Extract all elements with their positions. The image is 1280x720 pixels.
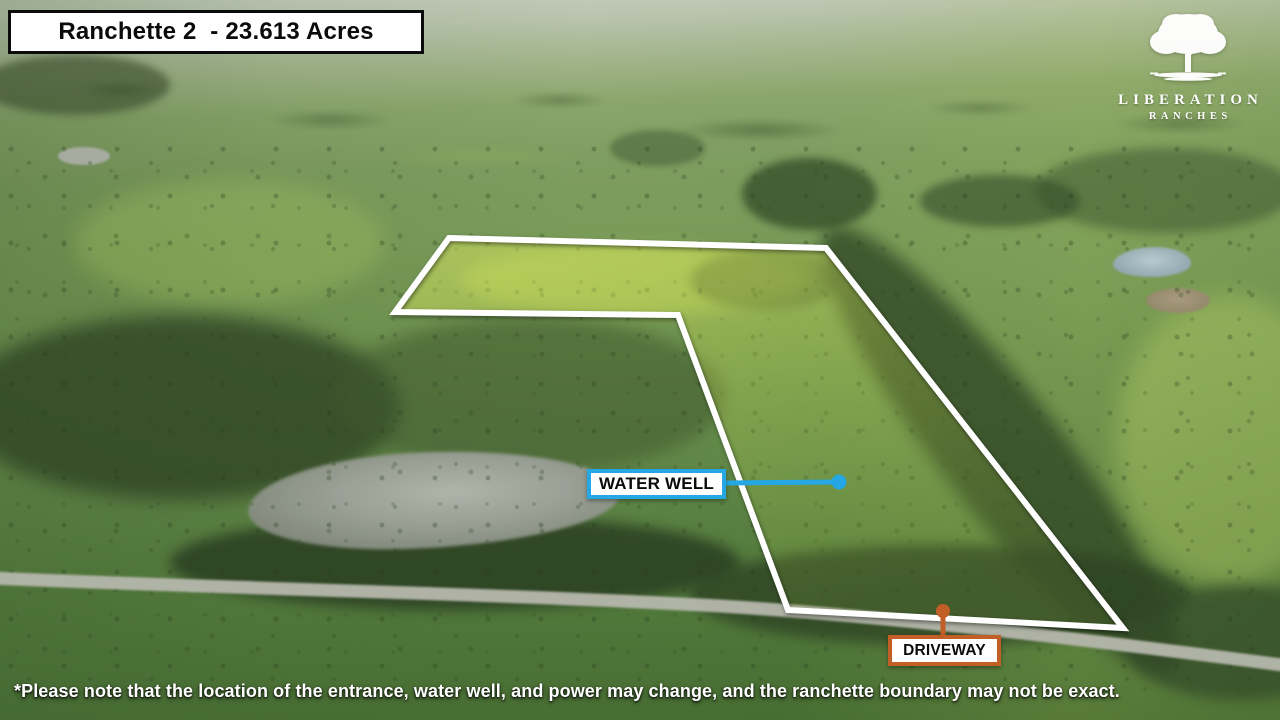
property-boundary-fill <box>395 238 1123 628</box>
liberation-ranches-logo: LIBERATION RANCHES <box>1103 6 1273 122</box>
logo-subname: RANCHES <box>1103 111 1273 122</box>
driveway-marker-dot <box>936 604 950 618</box>
property-title-badge: Ranchette 2 - 23.613 Acres <box>8 10 424 54</box>
aerial-photo: Ranchette 2 - 23.613 Acres LIBERATION RA… <box>0 0 1280 720</box>
property-title: Ranchette 2 - 23.613 Acres <box>58 18 373 46</box>
driveway-label-text: DRIVEWAY <box>903 642 986 660</box>
water-well-label-text: WATER WELL <box>599 474 714 494</box>
logo-name: LIBERATION <box>1103 92 1273 109</box>
water-well-label: WATER WELL <box>587 469 726 499</box>
map-overlay <box>0 0 1280 720</box>
oak-tree-icon <box>1128 6 1248 90</box>
driveway-label: DRIVEWAY <box>888 635 1001 666</box>
water-well-leader-line <box>726 482 839 483</box>
water-well-marker-dot <box>832 475 847 490</box>
disclaimer-note: *Please note that the location of the en… <box>14 681 1254 702</box>
